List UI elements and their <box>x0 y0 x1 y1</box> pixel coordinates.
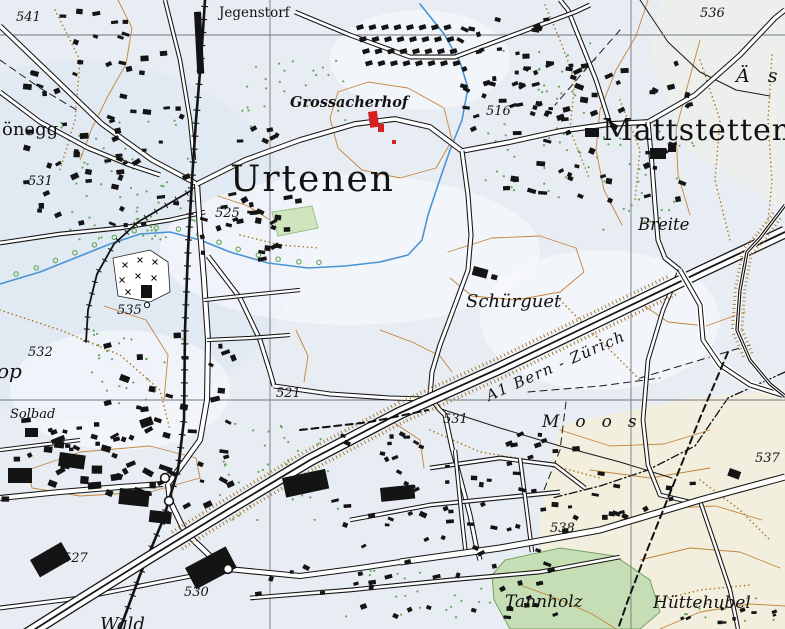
label-elev-531: 531 <box>28 174 53 189</box>
label-elev-525: 525 <box>215 206 240 221</box>
label-wald: Wald <box>100 614 145 629</box>
label-huettehubel: Hüttehubel <box>652 593 751 613</box>
roundabout <box>161 474 170 483</box>
map-canvas[interactable]: JegenstorfUrtenenMattstettenöneggÄsGross… <box>0 0 785 629</box>
label-urtenen: Urtenen <box>230 159 395 200</box>
label-elev-530: 530 <box>184 585 209 600</box>
roundabout <box>224 565 233 574</box>
map-viewport[interactable]: JegenstorfUrtenenMattstettenöneggÄsGross… <box>0 0 785 629</box>
label-jegenstorf: Jegenstorf <box>217 5 291 21</box>
label-elev-535: 535 <box>117 303 142 318</box>
red-building <box>392 140 396 144</box>
label-tannholz: Tannholz <box>505 592 584 612</box>
label-schuerguet: Schürguet <box>466 291 562 312</box>
label-elev-537: 537 <box>755 451 781 466</box>
church-building <box>141 285 152 298</box>
label-solbad: Solbad <box>10 407 55 422</box>
label-elev-538: 538 <box>550 521 575 536</box>
label-elev-532: 532 <box>28 345 53 360</box>
label-mattstetten: Mattstetten <box>602 113 785 148</box>
label-elev-527: 527 <box>63 551 89 566</box>
label-elev-516: 516 <box>486 104 511 119</box>
label-op: op <box>0 359 22 383</box>
label-moos: Moos <box>541 412 653 432</box>
label-breite: Breite <box>637 215 690 234</box>
roundabout <box>165 497 174 506</box>
label-oenegg: önegg <box>2 119 58 140</box>
label-elev-541: 541 <box>16 10 41 25</box>
label-elev-531b: 531 <box>443 412 468 427</box>
label-elev-521: 521 <box>276 386 301 401</box>
label-elev-536: 536 <box>700 6 725 21</box>
red-building <box>378 124 384 132</box>
label-aes: Äs <box>734 64 785 87</box>
label-grossacherhof: Grossacherhof <box>290 94 411 111</box>
